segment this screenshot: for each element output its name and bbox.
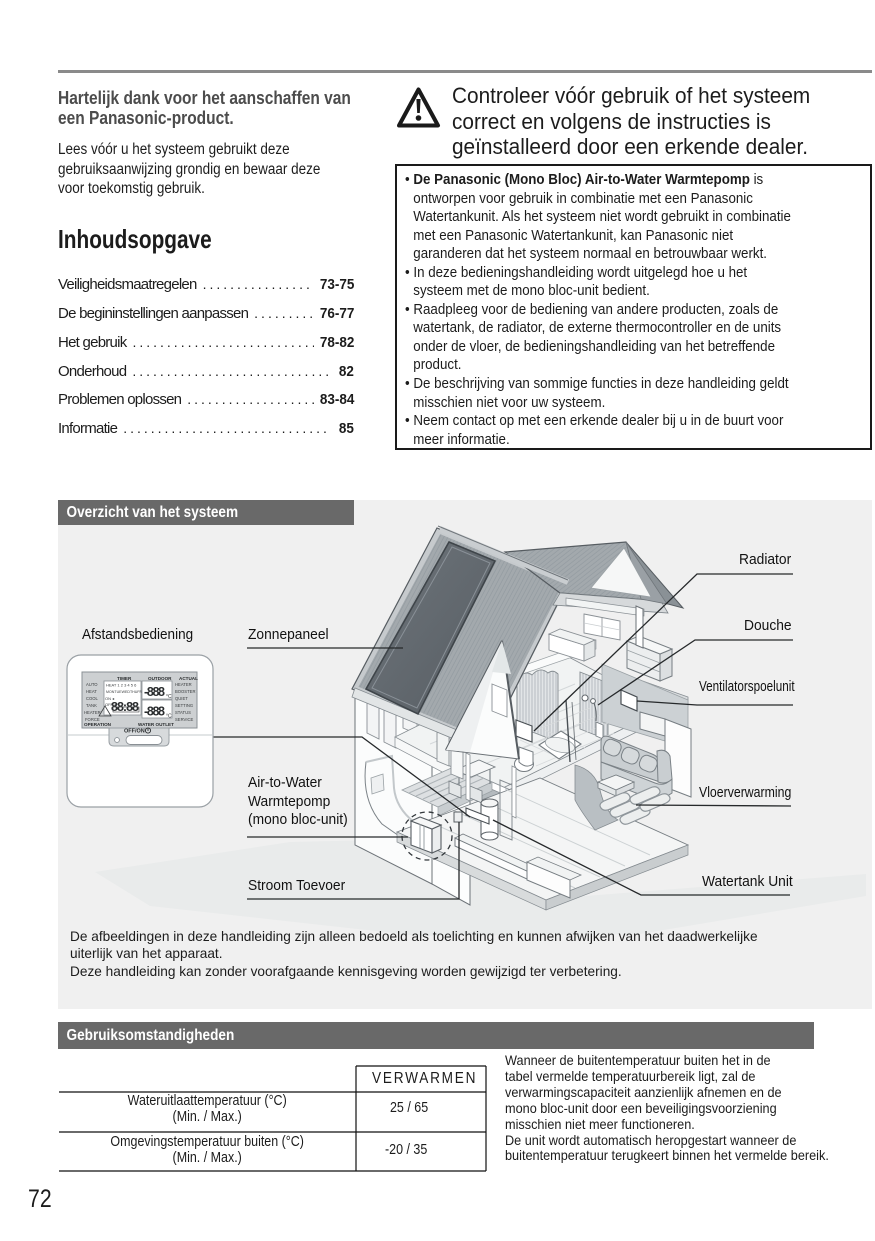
svg-text:HEATER: HEATER — [84, 710, 101, 715]
svg-text:TIMER: TIMER — [117, 676, 132, 681]
svg-text:°C: °C — [166, 694, 172, 700]
svg-text:°C: °C — [166, 714, 172, 720]
svg-text:FORCE: FORCE — [85, 717, 100, 722]
svg-text:TANK: TANK — [86, 703, 97, 708]
svg-text:QUIET: QUIET — [175, 696, 188, 701]
svg-text:WATER OUTLET: WATER OUTLET — [138, 722, 174, 727]
svg-text:ACTUAL: ACTUAL — [179, 676, 198, 681]
svg-text:-888: -888 — [144, 705, 165, 719]
svg-text:OPERATION: OPERATION — [84, 722, 112, 727]
svg-text:OFF/ON: OFF/ON — [124, 729, 145, 735]
svg-text:HEAT 1 2 3 4 5 6: HEAT 1 2 3 4 5 6 — [106, 683, 137, 688]
svg-text:SERVICE: SERVICE — [175, 717, 194, 722]
svg-text:STATUS: STATUS — [175, 710, 191, 715]
svg-text:-888: -888 — [144, 685, 165, 699]
svg-text:HEATER: HEATER — [175, 682, 192, 687]
svg-text:AUTO: AUTO — [86, 682, 98, 687]
svg-text:SETTING: SETTING — [175, 703, 193, 708]
svg-text:OUTDOOR: OUTDOOR — [148, 676, 172, 681]
svg-text:COOL: COOL — [86, 696, 99, 701]
svg-text:BOOSTER: BOOSTER — [175, 689, 195, 694]
svg-text:HEAT: HEAT — [86, 689, 97, 694]
